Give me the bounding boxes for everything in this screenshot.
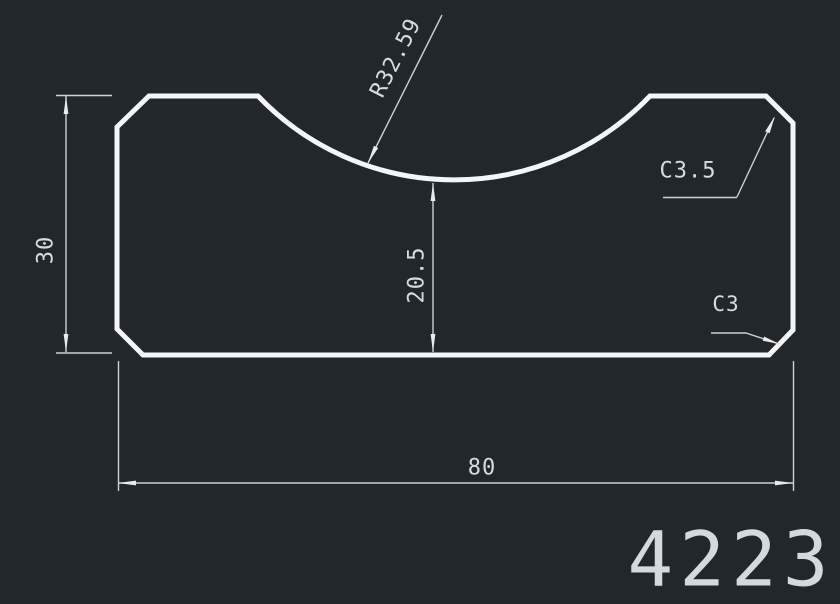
- part-outline: [117, 96, 793, 355]
- width-arrow-left: [118, 481, 136, 486]
- depth-arrow-bottom: [431, 334, 436, 352]
- width-arrow-right: [775, 481, 793, 486]
- width-dimension-label: 80: [468, 456, 497, 481]
- part-number: 4223: [627, 515, 834, 604]
- radius-leader-arrow: [368, 146, 378, 163]
- height-dimension: [56, 96, 112, 354]
- cad-drawing-canvas: 30 20.5 80 R32.59 C3.5 C3 4223: [0, 0, 840, 600]
- chamfer-bottom-leader-arrow: [763, 337, 780, 345]
- depth-arrow-top: [431, 183, 436, 201]
- height-arrow-top: [64, 96, 69, 114]
- chamfer-top-label: C3.5: [660, 159, 717, 184]
- chamfer-top-leader-arrow: [765, 116, 775, 133]
- height-arrow-bottom: [64, 334, 69, 352]
- width-dimension: [118, 361, 794, 491]
- height-dimension-label: 30: [34, 236, 59, 265]
- depth-dimension-label: 20.5: [405, 247, 430, 304]
- chamfer-bottom-label: C3: [712, 292, 739, 316]
